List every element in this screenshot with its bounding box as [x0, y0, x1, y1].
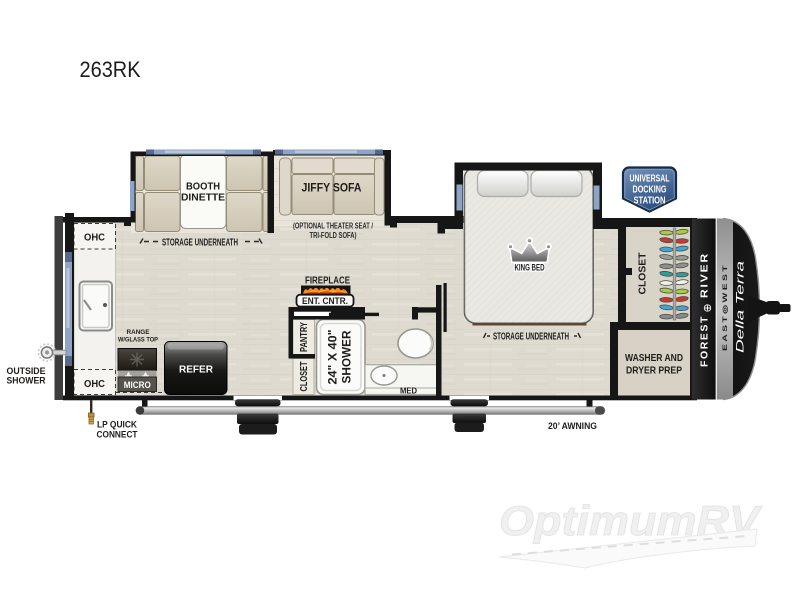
svg-text:OUTSIDE: OUTSIDE — [7, 366, 46, 376]
svg-text:W/GLASS TOP: W/GLASS TOP — [118, 337, 159, 344]
svg-text:DINETTE: DINETTE — [181, 193, 225, 204]
svg-text:OHC: OHC — [84, 232, 105, 244]
svg-text:CONNECT: CONNECT — [97, 430, 138, 440]
svg-text:REFER: REFER — [179, 364, 213, 376]
svg-text:SHOWER: SHOWER — [340, 330, 354, 383]
svg-text:DOCKING: DOCKING — [633, 185, 667, 196]
svg-text:RANGE: RANGE — [127, 329, 151, 336]
svg-text:20’ AWNING: 20’ AWNING — [548, 421, 597, 431]
svg-text:RIVER: RIVER — [700, 252, 711, 298]
svg-text:EAST◎WEST: EAST◎WEST — [722, 263, 729, 351]
svg-text:BOOTH: BOOTH — [186, 182, 220, 193]
svg-text:24" X 40": 24" X 40" — [326, 330, 340, 385]
svg-text:OHC: OHC — [84, 378, 105, 390]
svg-text:263RK: 263RK — [80, 57, 141, 82]
svg-text:LP QUICK: LP QUICK — [97, 420, 137, 430]
svg-text:TRI-FOLD SOFA): TRI-FOLD SOFA) — [310, 231, 357, 240]
svg-text:FIREPLACE: FIREPLACE — [305, 276, 350, 287]
svg-text:SHOWER: SHOWER — [7, 376, 47, 386]
svg-text:FOREST: FOREST — [700, 315, 711, 367]
svg-text:DRYER PREP: DRYER PREP — [626, 365, 682, 377]
svg-text:STORAGE UNDERNEATH: STORAGE UNDERNEATH — [493, 332, 569, 343]
svg-text:JIFFY SOFA: JIFFY SOFA — [302, 183, 362, 195]
svg-text:UNIVERSAL: UNIVERSAL — [630, 174, 670, 185]
svg-text:MED: MED — [400, 387, 417, 396]
svg-text:CLOSET: CLOSET — [299, 362, 310, 392]
svg-text:KING BED: KING BED — [515, 263, 545, 273]
svg-text:MICRO: MICRO — [124, 380, 151, 391]
svg-text:ENT. CNTR.: ENT. CNTR. — [302, 296, 348, 307]
svg-text:CLOSET: CLOSET — [637, 252, 649, 295]
svg-text:WASHER AND: WASHER AND — [625, 352, 683, 364]
svg-text:Della Terra: Della Terra — [735, 261, 747, 353]
svg-text:(OPTIONAL THEATER SEAT /: (OPTIONAL THEATER SEAT / — [293, 222, 374, 231]
svg-text:STATION: STATION — [634, 196, 666, 207]
svg-text:PANTRY: PANTRY — [299, 322, 310, 352]
svg-text:STORAGE UNDERNEATH: STORAGE UNDERNEATH — [162, 238, 238, 249]
